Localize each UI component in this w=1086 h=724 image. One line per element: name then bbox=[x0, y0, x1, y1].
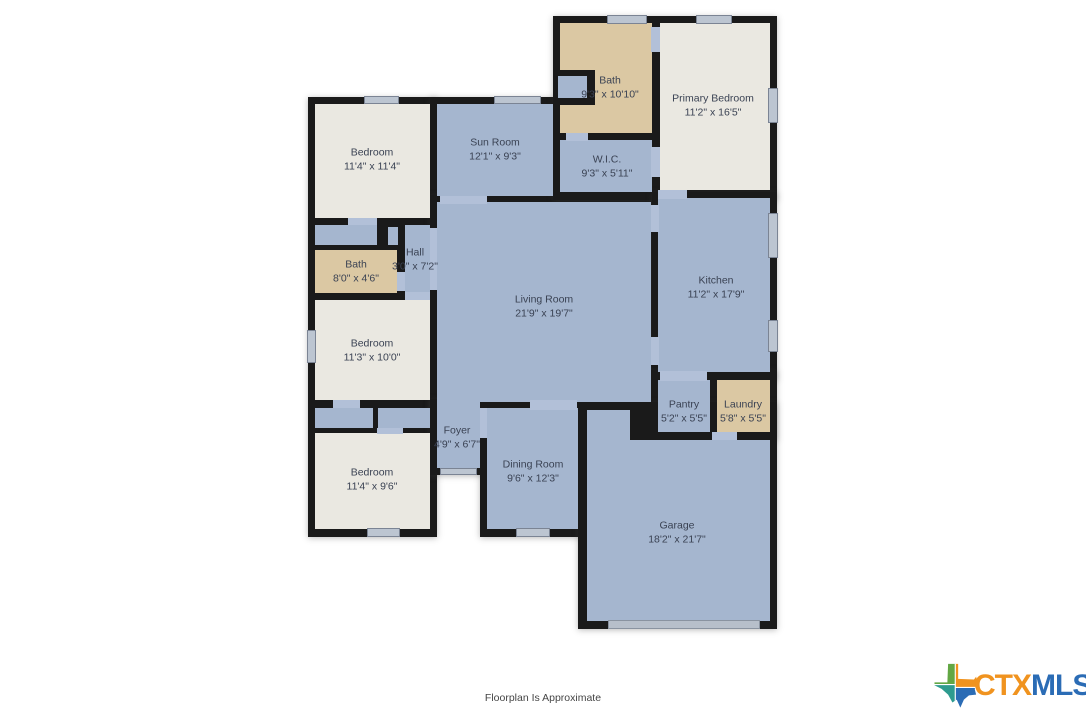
room-label-garage: Garage 18'2" x 21'7" bbox=[648, 520, 706, 547]
ctxmls-wordmark: CTXMLS bbox=[974, 661, 1086, 711]
room-label-bedroom-3: Bedroom 11'4" x 9'6" bbox=[347, 467, 398, 494]
room-label-hall: Hall 3'0" x 7'2" bbox=[392, 247, 438, 274]
room-label-pantry: Pantry 5'2" x 5'5" bbox=[661, 399, 707, 426]
room-dims: 9'3" x 5'11" bbox=[582, 167, 633, 181]
room-dims: 11'2" x 16'5" bbox=[672, 106, 754, 120]
opening-marker bbox=[530, 400, 577, 410]
room-dims: 12'1" x 9'3" bbox=[469, 150, 521, 164]
door-marker bbox=[658, 190, 687, 199]
room-dims: 5'8" x 5'5" bbox=[720, 412, 766, 426]
room-name: Bath bbox=[581, 75, 639, 89]
room-dims: 11'3" x 10'0" bbox=[344, 351, 401, 365]
garage-door-marker bbox=[608, 620, 760, 629]
texas-logo-icon bbox=[933, 661, 979, 711]
opening-marker bbox=[480, 408, 487, 438]
door-marker bbox=[333, 400, 360, 408]
room-label-foyer: Foyer 4'9" x 6'7" bbox=[434, 425, 480, 452]
room-dims: 3'0" x 7'2" bbox=[392, 260, 438, 274]
ctxmls-logo: CTXMLS bbox=[933, 660, 1086, 712]
room-label-wic: W.I.C. 9'3" x 5'11" bbox=[582, 154, 633, 181]
room-label-kitchen: Kitchen 11'2" x 17'9" bbox=[688, 275, 745, 302]
window-marker bbox=[607, 15, 647, 24]
room-label-primary-bedroom: Primary Bedroom 11'2" x 16'5" bbox=[672, 93, 754, 120]
closet-floor bbox=[315, 408, 373, 428]
room-label-laundry: Laundry 5'8" x 5'5" bbox=[720, 399, 766, 426]
room-name: Garage bbox=[648, 520, 706, 534]
room-name: Primary Bedroom bbox=[672, 93, 754, 107]
floorplan-screenshot: Bedroom 11'4" x 11'4" Sun Room 12'1" x 9… bbox=[0, 0, 1086, 724]
room-dims: 8'0" x 4'6" bbox=[333, 272, 379, 286]
door-marker bbox=[651, 147, 660, 177]
room-label-primary-bath: Bath 9'3" x 10'10" bbox=[581, 75, 639, 102]
closet-floor bbox=[315, 225, 377, 245]
room-dims: 11'2" x 17'9" bbox=[688, 288, 745, 302]
window-marker bbox=[364, 96, 399, 104]
door-marker bbox=[440, 196, 487, 204]
door-marker bbox=[712, 432, 737, 440]
window-marker bbox=[696, 15, 732, 24]
room-name: W.I.C. bbox=[582, 154, 633, 168]
window-marker bbox=[768, 88, 778, 123]
room-dims: 9'3" x 10'10" bbox=[581, 88, 639, 102]
room-name: Kitchen bbox=[688, 275, 745, 289]
window-marker bbox=[768, 213, 778, 258]
room-dims: 21'9" x 19'7" bbox=[515, 307, 573, 321]
room-label-bedroom-1: Bedroom 11'4" x 11'4" bbox=[344, 147, 400, 174]
room-label-living-room: Living Room 21'9" x 19'7" bbox=[515, 294, 573, 321]
room-name: Living Room bbox=[515, 294, 573, 308]
room-label-bath-2: Bath 8'0" x 4'6" bbox=[333, 259, 379, 286]
mls-text: MLS bbox=[1031, 669, 1086, 702]
door-marker bbox=[377, 428, 403, 434]
window-marker bbox=[494, 96, 541, 104]
window-marker bbox=[367, 528, 400, 537]
room-name: Bedroom bbox=[344, 338, 401, 352]
opening-marker bbox=[405, 292, 430, 300]
door-marker bbox=[651, 27, 660, 52]
closet-floor bbox=[378, 408, 430, 428]
window-marker bbox=[516, 528, 550, 537]
room-dims: 4'9" x 6'7" bbox=[434, 438, 480, 452]
room-label-sun-room: Sun Room 12'1" x 9'3" bbox=[469, 137, 521, 164]
opening-marker bbox=[660, 371, 707, 381]
room-label-bedroom-2: Bedroom 11'3" x 10'0" bbox=[344, 338, 401, 365]
opening-marker bbox=[651, 337, 659, 365]
room-dims: 11'4" x 11'4" bbox=[344, 160, 400, 174]
front-door-marker bbox=[440, 468, 477, 475]
garage-floor bbox=[587, 410, 630, 441]
window-marker bbox=[307, 330, 316, 363]
room-label-dining-room: Dining Room 9'6" x 12'3" bbox=[503, 459, 564, 486]
opening-marker bbox=[651, 205, 659, 232]
room-dims: 5'2" x 5'5" bbox=[661, 412, 707, 426]
room-name: Hall bbox=[392, 247, 438, 261]
door-marker bbox=[348, 218, 377, 225]
room-name: Bedroom bbox=[344, 147, 400, 161]
door-marker bbox=[397, 272, 405, 291]
room-name: Bedroom bbox=[347, 467, 398, 481]
door-marker bbox=[566, 133, 588, 141]
room-name: Dining Room bbox=[503, 459, 564, 473]
room-dims: 18'2" x 21'7" bbox=[648, 533, 706, 547]
room-name: Sun Room bbox=[469, 137, 521, 151]
room-name: Foyer bbox=[434, 425, 480, 439]
window-marker bbox=[768, 320, 778, 352]
floorplan: Bedroom 11'4" x 11'4" Sun Room 12'1" x 9… bbox=[0, 0, 1086, 724]
disclaimer-text: Floorplan Is Approximate bbox=[0, 692, 1086, 704]
room-dims: 11'4" x 9'6" bbox=[347, 480, 398, 494]
ctx-text: CTX bbox=[974, 669, 1031, 702]
closet-floor bbox=[388, 227, 398, 245]
room-name: Laundry bbox=[720, 399, 766, 413]
room-name: Pantry bbox=[661, 399, 707, 413]
room-name: Bath bbox=[333, 259, 379, 273]
room-dims: 9'6" x 12'3" bbox=[503, 472, 564, 486]
